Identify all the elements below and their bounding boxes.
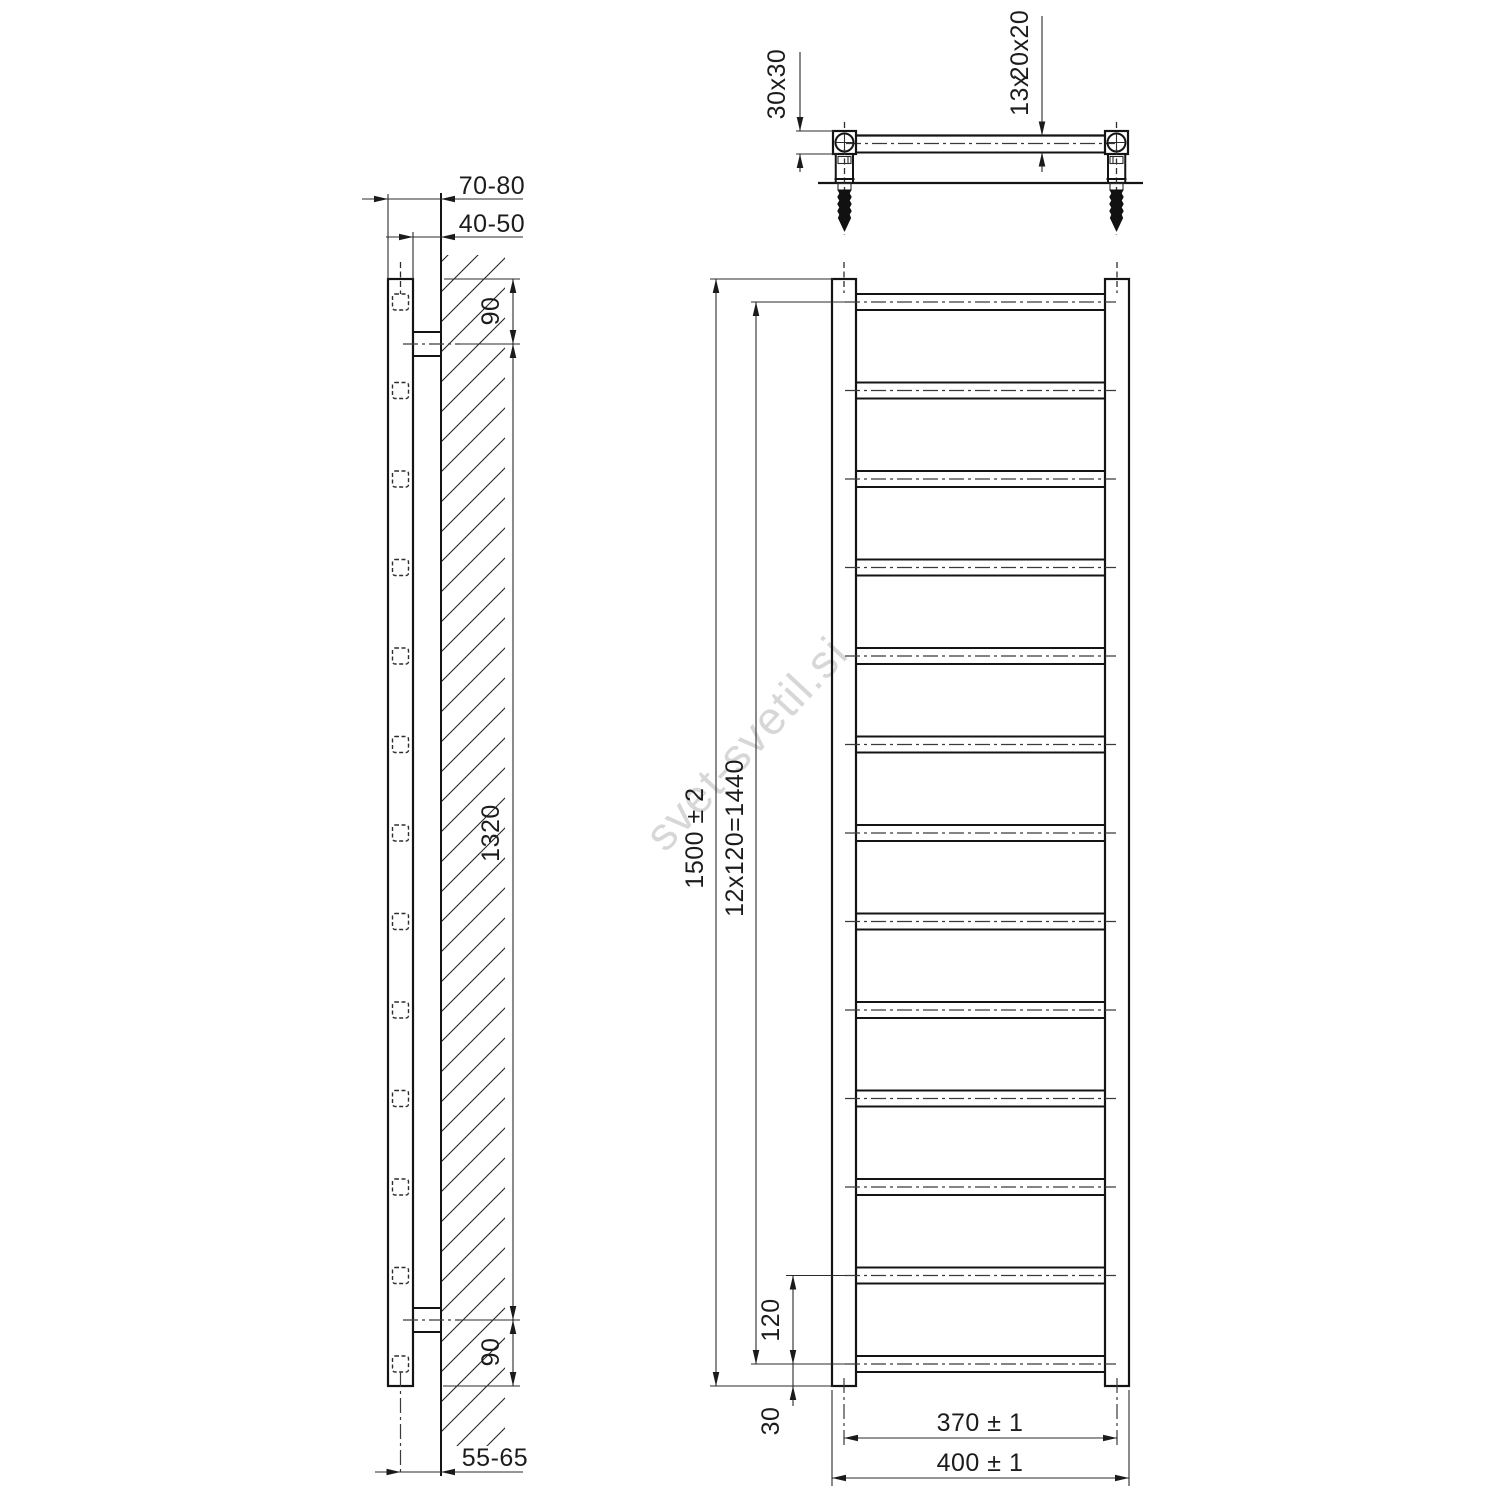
dim-label-120: 120 xyxy=(757,1298,785,1341)
hatch-line xyxy=(441,1184,509,1252)
dim-label-30x30: 30x30 xyxy=(763,49,791,120)
dim-label-70-80: 70-80 xyxy=(459,172,525,200)
hatch-line xyxy=(441,434,509,502)
hatch-line xyxy=(441,494,509,562)
side-rung-section xyxy=(393,1356,409,1372)
hatch-line xyxy=(441,524,509,592)
hatch-line xyxy=(441,644,509,712)
side-rung-section xyxy=(393,560,409,576)
dim-label-1440: 12x120=1440 xyxy=(721,759,749,917)
front-rungs xyxy=(845,294,1116,1372)
front-view: 1500 ± 2 12x120=1440 120 30 370 ± 1 xyxy=(681,262,1129,1486)
dim-label-40-50: 40-50 xyxy=(459,210,525,238)
hatch-line xyxy=(441,1094,509,1162)
hatch-line xyxy=(441,974,509,1042)
hatch-line xyxy=(441,914,509,982)
dim-top-bracket-offset: 90 xyxy=(444,279,520,344)
side-rung-section xyxy=(393,471,409,487)
hatch-line xyxy=(441,674,509,742)
dim-label-20x20: 20x20 xyxy=(1006,10,1034,81)
side-rung-section xyxy=(393,825,409,841)
hatch-line xyxy=(441,464,509,532)
hatch-line xyxy=(441,614,509,682)
hatch-line xyxy=(441,734,509,802)
side-rung-section xyxy=(393,648,409,664)
side-rung-section xyxy=(393,383,409,399)
side-rung-section xyxy=(393,737,409,753)
side-rung-section xyxy=(393,1179,409,1195)
hatch-line xyxy=(441,854,509,922)
dim-overall-height: 1500 ± 2 xyxy=(681,279,833,1386)
top-view: 30x30 20x20 13x xyxy=(763,10,1143,235)
hatch-line xyxy=(441,944,509,1012)
dim-bottom-bracket-offset: 90 xyxy=(443,1320,520,1386)
hatch-line xyxy=(441,554,509,622)
side-rung-section xyxy=(393,1268,409,1284)
side-tube-outline xyxy=(388,279,413,1386)
hatch-line xyxy=(441,1274,509,1342)
side-bracket-top xyxy=(403,332,460,356)
dim-label-400: 400 ± 1 xyxy=(937,1449,1024,1477)
hatch-line xyxy=(441,344,509,412)
dim-label-55-65: 55-65 xyxy=(462,1444,528,1472)
dim-label-1320: 1320 xyxy=(477,804,505,862)
hatch-line xyxy=(441,1064,509,1132)
side-view: 70-80 40-50 90 1320 90 xyxy=(362,172,528,1492)
dim-label-30: 30 xyxy=(757,1407,785,1436)
side-rung-section xyxy=(393,1002,409,1018)
dim-label-370: 370 ± 1 xyxy=(937,1409,1024,1437)
dim-rung-section: 20x20 13x xyxy=(1006,10,1042,172)
hatch-line xyxy=(441,1214,509,1282)
dim-label-1500: 1500 ± 2 xyxy=(681,787,709,888)
hatch-line xyxy=(441,1004,509,1072)
dim-axis-to-wall: 55-65 xyxy=(375,1444,528,1472)
hatch-line xyxy=(441,884,509,952)
hatch-line xyxy=(441,584,509,652)
dim-rung-pitch-total: 12x120=1440 xyxy=(721,302,846,1364)
radiator-technical-drawing: svet-svetil.si 70-80 xyxy=(0,0,1500,1500)
hatch-line xyxy=(441,1124,509,1192)
side-rung-sections xyxy=(393,294,409,1372)
hatch-line xyxy=(441,1034,509,1102)
dim-bottom-offset: 30 xyxy=(757,1364,793,1435)
hatch-line xyxy=(441,1364,509,1432)
dim-label-90-bottom: 90 xyxy=(477,1338,505,1367)
dim-label-13x: 13x xyxy=(1006,74,1034,116)
side-rung-section xyxy=(393,294,409,310)
dim-wall-offset-back: 40-50 xyxy=(386,210,525,279)
hatch-line xyxy=(441,704,509,772)
dim-tube-section: 30x30 xyxy=(763,49,838,172)
side-bracket-bottom xyxy=(403,1308,460,1332)
hatch-line xyxy=(441,404,509,472)
side-rung-section xyxy=(393,914,409,930)
technical-drawing-page: svet-svetil.si 70-80 xyxy=(0,0,1500,1500)
dim-label-90-top: 90 xyxy=(477,297,505,326)
side-rung-section xyxy=(393,1091,409,1107)
hatch-line xyxy=(441,1244,509,1312)
hatch-line xyxy=(441,1154,509,1222)
hatch-line xyxy=(441,374,509,442)
dim-axis-width: 370 ± 1 xyxy=(844,1378,1117,1446)
